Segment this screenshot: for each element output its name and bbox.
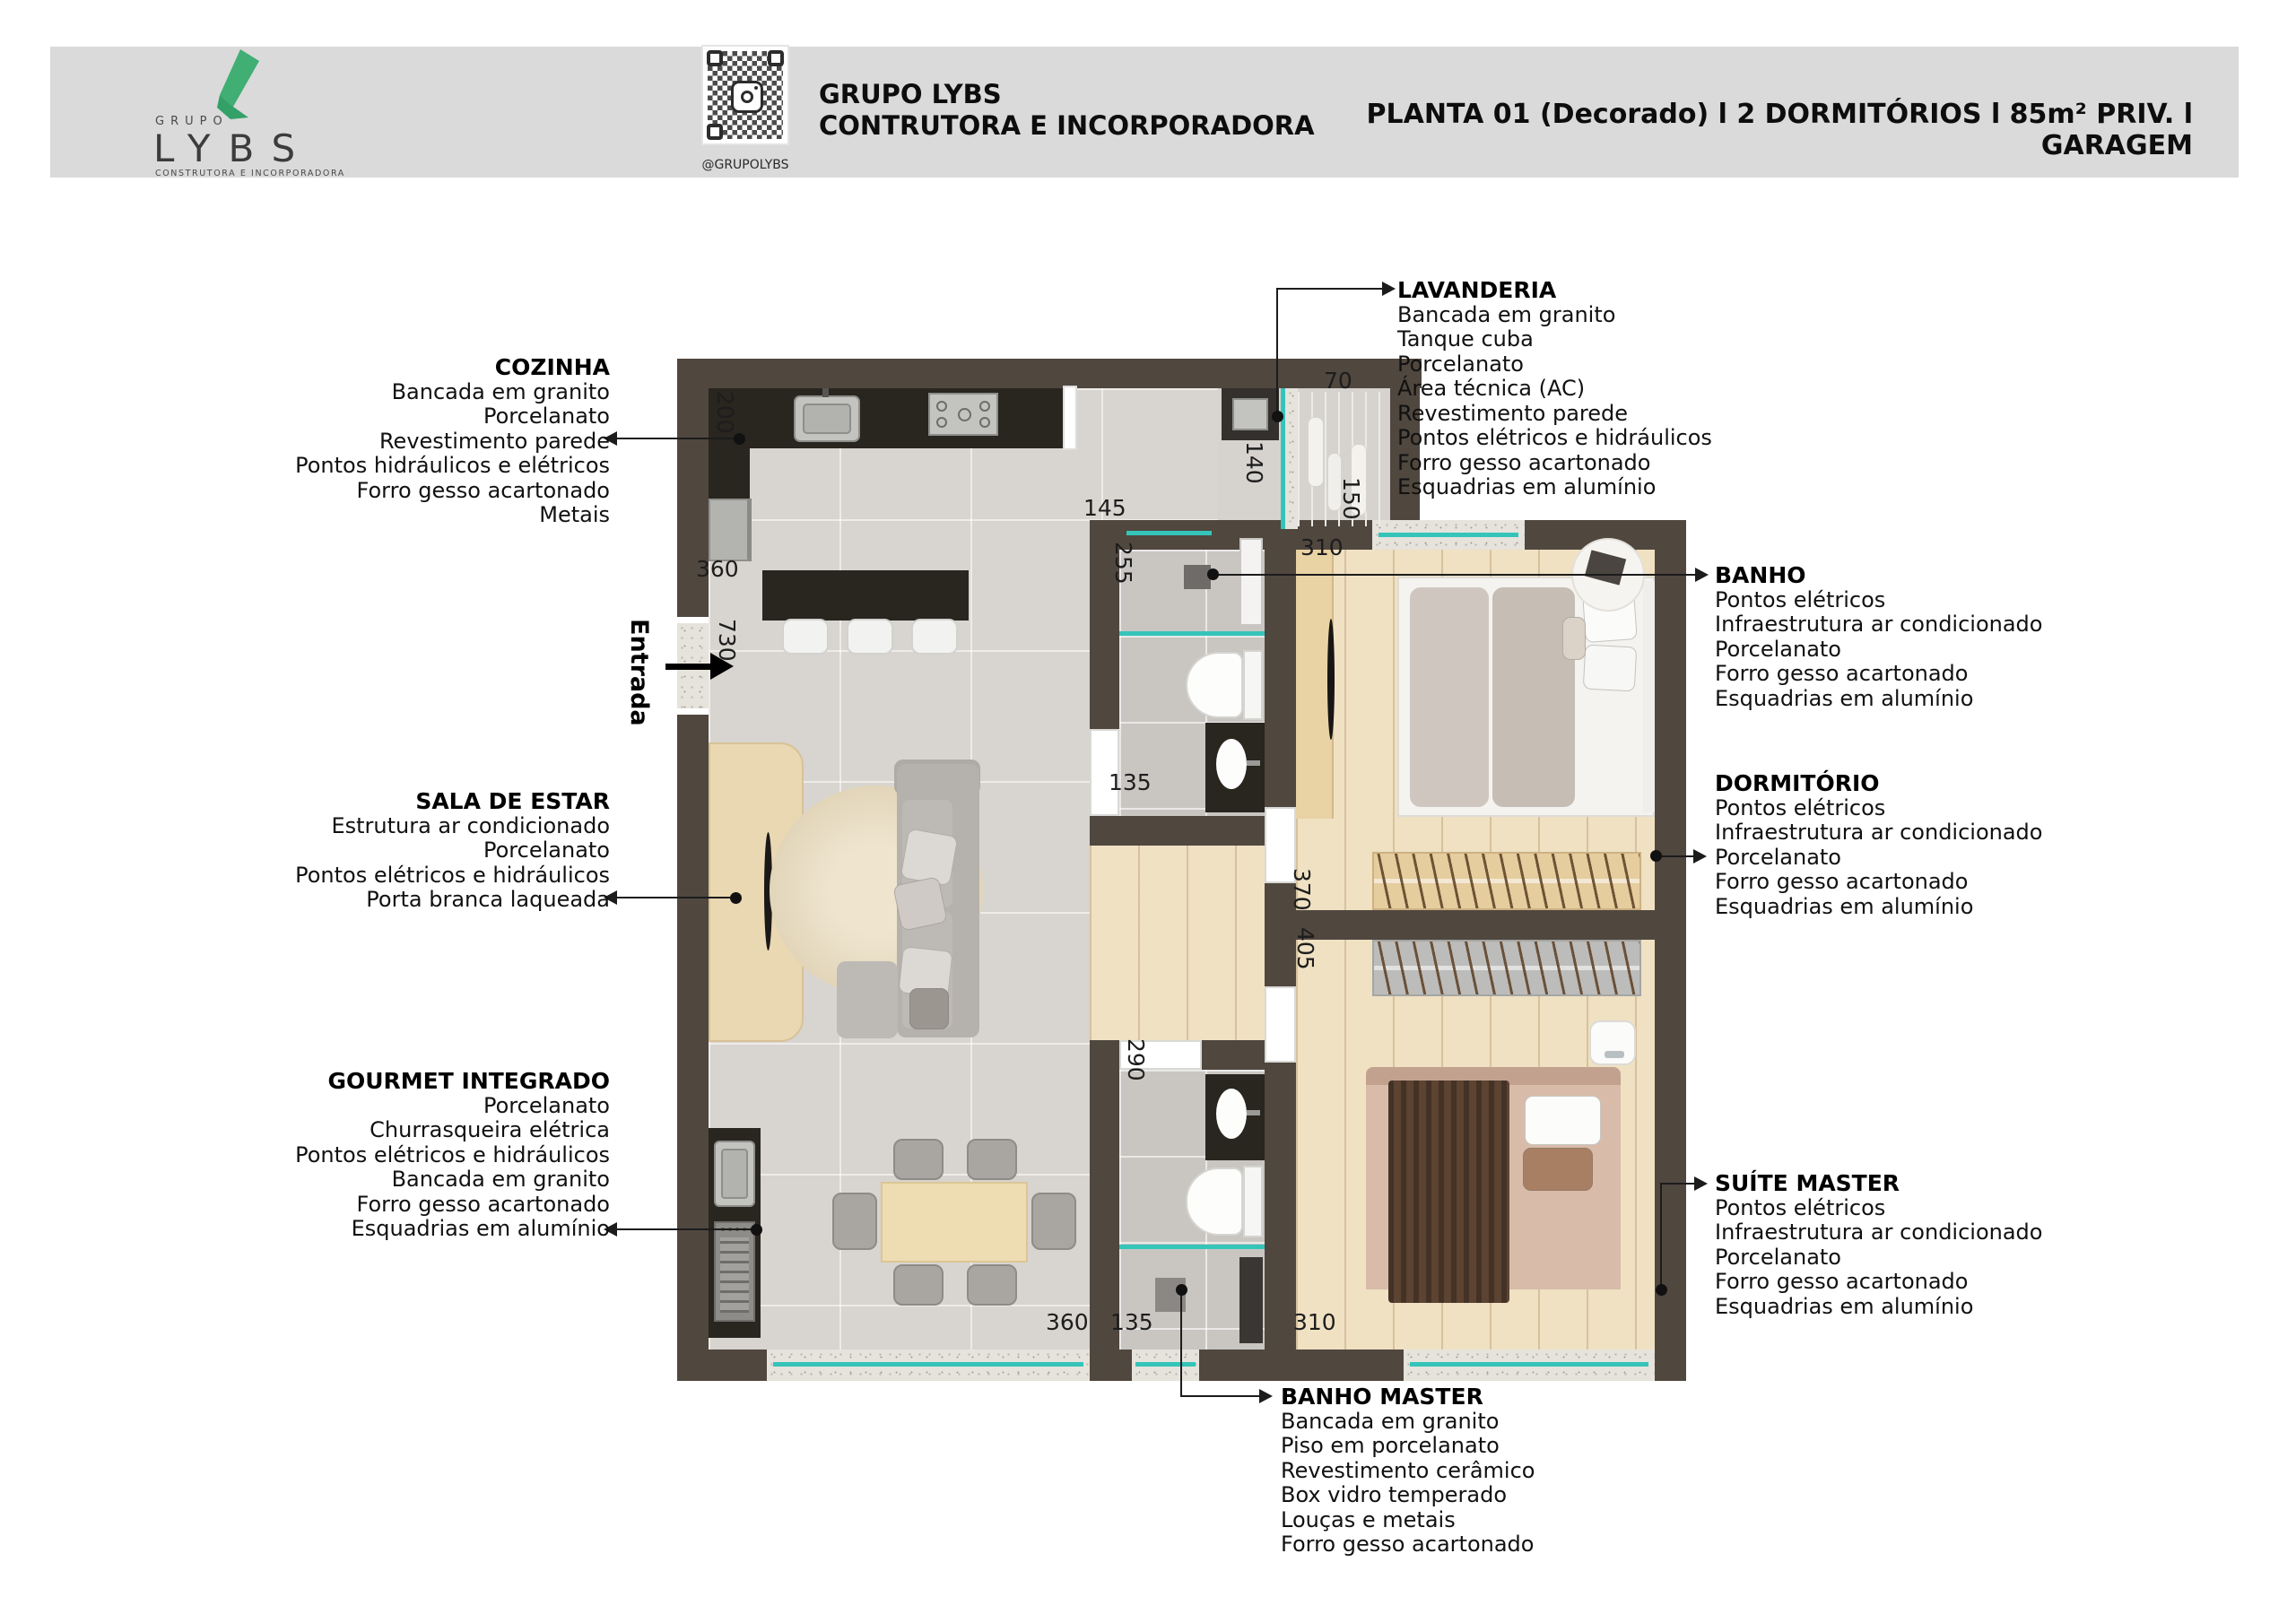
island-stool (782, 619, 829, 655)
dining-chair (967, 1264, 1017, 1306)
island-stool (911, 619, 958, 655)
spec-item: Forro gesso acartonado (1397, 451, 1810, 476)
banho-shower-head (1184, 565, 1211, 589)
dim-dorm-depth: 370 (1289, 868, 1315, 911)
qr-caption: @GRUPOLYBS (683, 158, 807, 172)
spec-item: Box vidro temperado (1281, 1483, 1657, 1508)
spec-item: Forro gesso acartonado (1715, 870, 2145, 895)
kitchen-faucet (822, 388, 829, 397)
leader-lavanderia-arrow (1382, 282, 1396, 296)
dim-banho-door: 135 (1109, 769, 1152, 795)
dim-dormitorio-width: 310 (1300, 534, 1344, 560)
spec-item: Revestimento cerâmico (1281, 1459, 1657, 1484)
spec-item: Esquadrias em alumínio (1715, 1295, 2145, 1320)
annotation-gourmet-integrado: GOURMET INTEGRADO PorcelanatoChurrasquei… (224, 1069, 610, 1242)
window-dormitorio-glass (1378, 533, 1518, 537)
sofa-pillow (892, 876, 948, 932)
dim-gourmet-window: 360 (1046, 1309, 1089, 1335)
gourmet-sink (714, 1141, 755, 1207)
spec-item: Infraestrutura ar condicionado (1715, 612, 2145, 638)
kitchen-counter (709, 388, 1063, 448)
annotation-sala-de-estar: SALA DE ESTAR Estrutura ar condicionadoP… (233, 789, 610, 913)
company-line2: CONTRUTORA E INCORPORADORA (819, 110, 1315, 142)
spec-item: Bancada em granito (1397, 303, 1810, 328)
leader-dormitorio-dot (1650, 850, 1662, 862)
floorplan-page: GRUPO LYBS CONSTRUTORA E INCORPORADORA @… (0, 0, 2296, 1623)
banho-master-niche (1239, 1257, 1263, 1343)
wall-end-cap (1063, 386, 1077, 450)
dim-entrada-span: 730 (714, 619, 740, 662)
washing-machine (1222, 388, 1279, 440)
spec-item: Forro gesso acartonado (1715, 662, 2145, 687)
spec-item: Porcelanato (224, 1094, 610, 1119)
dining-chair (893, 1264, 944, 1306)
annotation-title: GOURMET INTEGRADO (224, 1069, 610, 1094)
suite-wardrobe (1372, 940, 1641, 996)
leader-sala-dot (730, 892, 742, 904)
spec-item: Porta branca laqueada (233, 888, 610, 913)
sofa-chaise (837, 961, 898, 1038)
qr-finder (768, 50, 784, 66)
spec-item: Porcelanato (1397, 352, 1810, 378)
spec-item: Porcelanato (1715, 638, 2145, 663)
spec-item: Estrutura ar condicionado (233, 814, 610, 839)
window-banho-glass (1126, 531, 1212, 535)
banho-faucet (1247, 760, 1260, 766)
spec-item: Bancada em granito (1281, 1410, 1657, 1435)
plan-title: PLANTA 01 (Decorado) l 2 DORMITÓRIOS l 8… (1256, 99, 2193, 161)
company-line1: GRUPO LYBS (819, 79, 1315, 110)
annotation-title: LAVANDERIA (1397, 278, 1810, 303)
dorm-tv (1327, 619, 1335, 740)
dim-banho-master-depth: 290 (1123, 1038, 1149, 1081)
annotation-title: BANHO (1715, 563, 2145, 588)
spec-item: Área técnica (AC) (1397, 377, 1810, 402)
leader-gourmet-dot (751, 1224, 762, 1236)
spec-item: Forro gesso acartonado (224, 1193, 610, 1218)
dim-banho-master-width: 135 (1110, 1309, 1153, 1335)
window-gourmet-glass (773, 1362, 1083, 1367)
spec-item: Bancada em granito (233, 380, 610, 405)
leader-banho-dot (1207, 568, 1219, 580)
leader-cozinha-dot (734, 433, 745, 445)
dorm-wardrobe (1372, 852, 1641, 910)
spec-item: Esquadrias em alumínio (1397, 475, 1810, 500)
dining-chair (832, 1193, 877, 1250)
suite-throw-blanket (1388, 1081, 1509, 1303)
spec-item: Bancada em granito (224, 1167, 610, 1193)
entrada-arrow (665, 664, 710, 670)
leader-lavanderia-dot (1272, 411, 1283, 422)
brand-chevron-icon (213, 49, 259, 123)
banho-master-shower-glass (1119, 1245, 1265, 1249)
annotation-title: COZINHA (233, 355, 610, 380)
annotation-title: SALA DE ESTAR (233, 789, 610, 814)
banho-toilet (1186, 652, 1243, 718)
gourmet-grill (714, 1221, 755, 1322)
dim-suite-depth: 405 (1292, 927, 1318, 970)
dim-suite-width: 310 (1293, 1309, 1336, 1335)
spec-item: Metais (233, 503, 610, 528)
leader-banho-master-arrow (1259, 1389, 1273, 1403)
brand-subtitle: CONSTRUTORA E INCORPORADORA (155, 169, 345, 178)
spec-item: Piso em porcelanato (1281, 1434, 1657, 1459)
spec-item: Porcelanato (233, 838, 610, 864)
sofa-pillow (909, 988, 949, 1029)
banho-toilet-tank (1243, 650, 1263, 720)
dim-lav-top: 70 (1324, 368, 1352, 394)
leader-banho-arrow (1695, 568, 1709, 582)
banho-master-sink (1216, 1089, 1247, 1139)
wall-dorm-suite (1296, 910, 1655, 940)
annotation-title: SUÍTE MASTER (1715, 1171, 2145, 1196)
spec-item: Pontos elétricos (1715, 588, 2145, 613)
banho-master-toilet-tank (1243, 1166, 1263, 1237)
annotation-banho-master: BANHO MASTER Bancada em granitoPiso em p… (1281, 1384, 1657, 1558)
dorm-duvet (1410, 587, 1489, 807)
spec-item: Porcelanato (1715, 846, 2145, 871)
leader-banho-master-h (1180, 1395, 1265, 1397)
spec-item: Infraestrutura ar condicionado (1715, 1220, 2145, 1245)
wall-bottom-a (677, 1350, 767, 1381)
qr-code (701, 45, 789, 145)
kitchen-counter-corner (709, 448, 750, 499)
spec-item: Pontos elétricos e hidráulicos (224, 1143, 610, 1168)
spec-item: Revestimento parede (1397, 402, 1810, 427)
annotation-dormitorio: DORMITÓRIO Pontos elétricosInfraestrutur… (1715, 771, 2145, 919)
spec-item: Forro gesso acartonado (1715, 1270, 2145, 1295)
leader-banho-master-v (1180, 1289, 1182, 1397)
banho-sink (1216, 739, 1247, 789)
spec-item: Pontos hidráulicos e elétricos (233, 454, 610, 479)
entry-jamb (677, 708, 709, 715)
kitchen-island (762, 570, 969, 621)
banho-niche (1239, 538, 1263, 626)
annotation-lavanderia: LAVANDERIA Bancada em granitoTanque cuba… (1397, 278, 1810, 500)
annotation-cozinha: COZINHA Bancada em granitoPorcelanatoRev… (233, 355, 610, 528)
banho-master-faucet (1247, 1110, 1260, 1115)
suite-nightstand (1589, 1020, 1636, 1065)
dim-cozinha-width: 360 (696, 556, 739, 582)
dim-hall-top: 145 (1083, 495, 1126, 521)
dining-chair (967, 1139, 1017, 1180)
dorm-pillow (1583, 645, 1638, 692)
window-suite-glass (1410, 1362, 1648, 1367)
spec-item: Esquadrias em alumínio (224, 1217, 610, 1242)
leader-banho-master-dot (1176, 1284, 1187, 1296)
leader-lavanderia-h (1276, 288, 1384, 290)
spec-item: Esquadrias em alumínio (1715, 895, 2145, 920)
dim-lav-right: 150 (1338, 477, 1364, 520)
kitchen-sink (794, 395, 860, 442)
spec-item: Porcelanato (1715, 1245, 2145, 1271)
leader-suite-v (1660, 1184, 1662, 1289)
spec-item: Pontos elétricos (1715, 796, 2145, 821)
wall-left-lower (677, 715, 709, 1350)
spec-item: Louças e metais (1281, 1508, 1657, 1533)
dining-chair (1031, 1193, 1076, 1250)
wall-top (677, 359, 1422, 388)
annotation-title: DORMITÓRIO (1715, 771, 2145, 796)
wall-bedroom-column-c (1265, 1063, 1296, 1350)
dorm-headboard (1643, 581, 1655, 812)
company-name: GRUPO LYBS CONTRUTORA E INCORPORADORA (819, 79, 1315, 142)
dim-cozinha-depth: 200 (712, 391, 738, 434)
leader-suite-dot (1656, 1284, 1667, 1296)
qr-finder (707, 124, 723, 140)
spec-item: Pontos elétricos e hidráulicos (233, 864, 610, 889)
leader-dormitorio-arrow (1693, 849, 1707, 864)
dining-chair (893, 1139, 944, 1180)
spec-item: Esquadrias em alumínio (1715, 687, 2145, 712)
suite-pillow (1523, 1148, 1593, 1191)
instagram-icon (731, 81, 763, 113)
dining-table (881, 1182, 1028, 1263)
brand-logo: GRUPO LYBS CONSTRUTORA E INCORPORADORA (148, 47, 345, 178)
annotation-banho: BANHO Pontos elétricosInfraestrutura ar … (1715, 563, 2145, 711)
qr-finder (707, 50, 723, 66)
leader-sala (617, 897, 735, 898)
dim-lav-width: 140 (1241, 441, 1267, 484)
wall-banho-master-left (1090, 1040, 1119, 1350)
annotation-suite-master: SUÍTE MASTER Pontos elétricosInfraestrut… (1715, 1171, 2145, 1319)
leader-lavanderia-v (1276, 289, 1278, 416)
entry-jamb (677, 617, 709, 623)
banho-shower-glass (1119, 631, 1265, 636)
laundry-counter (1285, 388, 1298, 529)
annotation-title: BANHO MASTER (1281, 1384, 1657, 1410)
spec-item: Churrasqueira elétrica (224, 1118, 610, 1143)
leader-banho (1213, 574, 1697, 576)
spec-item: Forro gesso acartonado (233, 479, 610, 504)
spec-item: Forro gesso acartonado (1281, 1532, 1657, 1558)
spec-item: Porcelanato (233, 404, 610, 430)
dorm-pillow (1562, 617, 1586, 660)
spec-item: Revestimento parede (233, 430, 610, 455)
brand-name: LYBS (153, 126, 313, 170)
leader-dormitorio (1656, 855, 1699, 857)
dim-banho-depth: 255 (1110, 542, 1136, 585)
leader-suite-arrow (1694, 1176, 1708, 1191)
suite-pillow (1525, 1096, 1601, 1145)
banho-master-toilet (1186, 1167, 1243, 1236)
fridge (709, 499, 752, 561)
leader-gourmet (617, 1228, 756, 1230)
wall-bottom-b (1090, 1350, 1132, 1381)
spec-item: Tanque cuba (1397, 327, 1810, 352)
wall-bedroom-column-a (1265, 550, 1296, 807)
wall-bottom-c (1199, 1350, 1404, 1381)
kitchen-cooktop (928, 393, 998, 436)
spec-item: Pontos elétricos (1715, 1196, 2145, 1221)
leader-cozinha (617, 438, 741, 439)
window-banho-master-glass (1135, 1362, 1196, 1367)
entrada-label: Entrada (625, 619, 653, 726)
spec-item: Pontos elétricos e hidráulicos (1397, 426, 1810, 451)
hanging-clothes (1308, 417, 1324, 487)
door-suite (1265, 986, 1296, 1063)
spec-item: Infraestrutura ar condicionado (1715, 820, 2145, 846)
island-stool (847, 619, 893, 655)
